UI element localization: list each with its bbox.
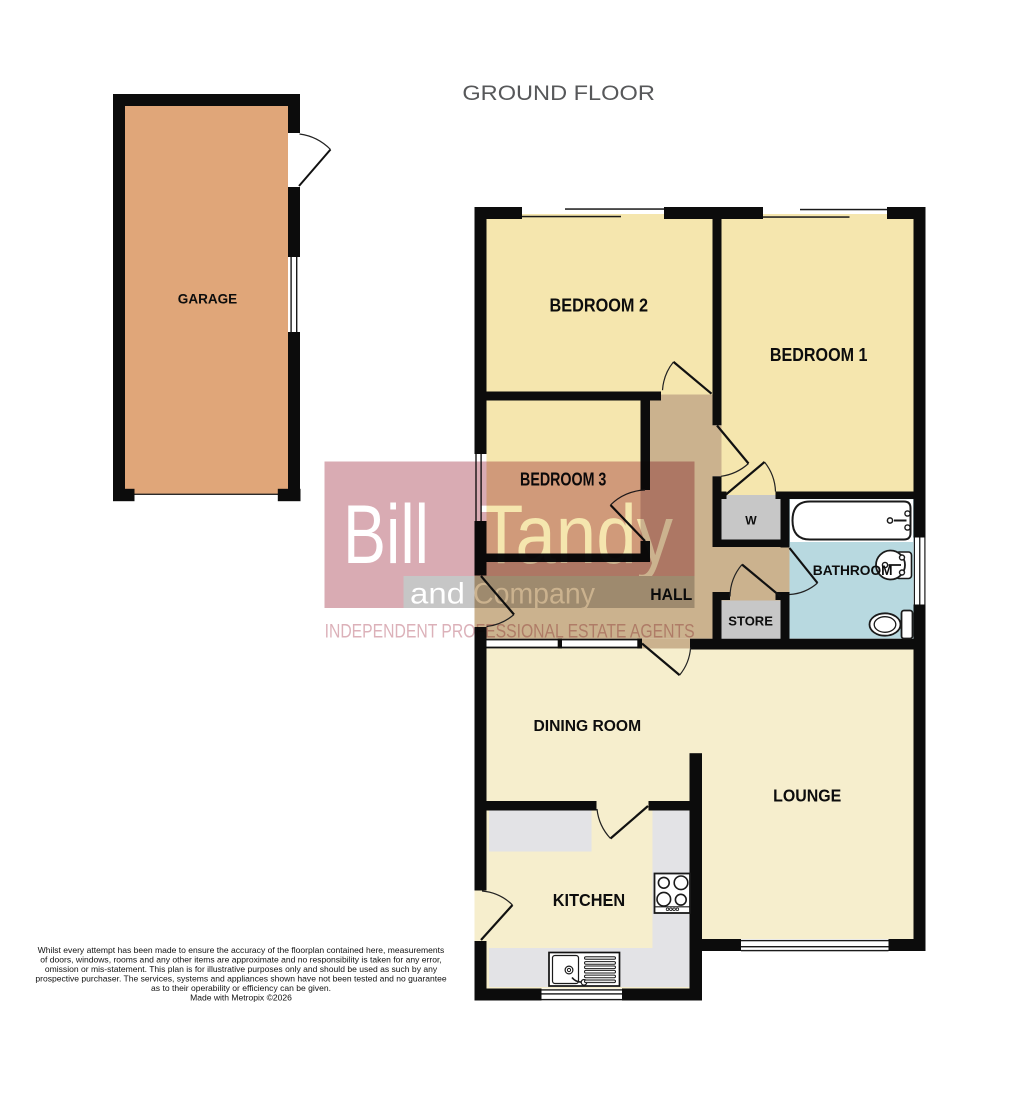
- svg-text:Whilst every attempt has been: Whilst every attempt has been made to en…: [38, 945, 445, 955]
- svg-text:BEDROOM 2: BEDROOM 2: [550, 296, 649, 316]
- svg-text:omission or mis-statement. Thi: omission or mis-statement. This plan is …: [45, 964, 438, 974]
- svg-text:Made with Metropix ©2026: Made with Metropix ©2026: [190, 993, 292, 1003]
- svg-text:KITCHEN: KITCHEN: [553, 891, 625, 910]
- svg-text:INDEPENDENT PROFESSIONAL ESTAT: INDEPENDENT PROFESSIONAL ESTATE AGENTS: [325, 622, 695, 643]
- svg-text:prospective purchaser. The ser: prospective purchaser. The services, sys…: [35, 974, 447, 984]
- svg-text:STORE: STORE: [728, 614, 773, 629]
- svg-text:GROUND FLOOR: GROUND FLOOR: [462, 81, 655, 105]
- svg-text:of doors, windows, rooms and a: of doors, windows, rooms and any other i…: [40, 955, 441, 965]
- svg-text:DINING ROOM: DINING ROOM: [534, 718, 642, 735]
- svg-text:GARAGE: GARAGE: [178, 290, 237, 306]
- svg-text:BATHROOM: BATHROOM: [813, 563, 893, 578]
- svg-text:LOUNGE: LOUNGE: [773, 786, 841, 806]
- svg-text:BEDROOM 1: BEDROOM 1: [770, 344, 868, 365]
- svg-text:as to their operability or eff: as to their operability or efficiency ca…: [151, 983, 331, 993]
- svg-text:W: W: [745, 514, 757, 528]
